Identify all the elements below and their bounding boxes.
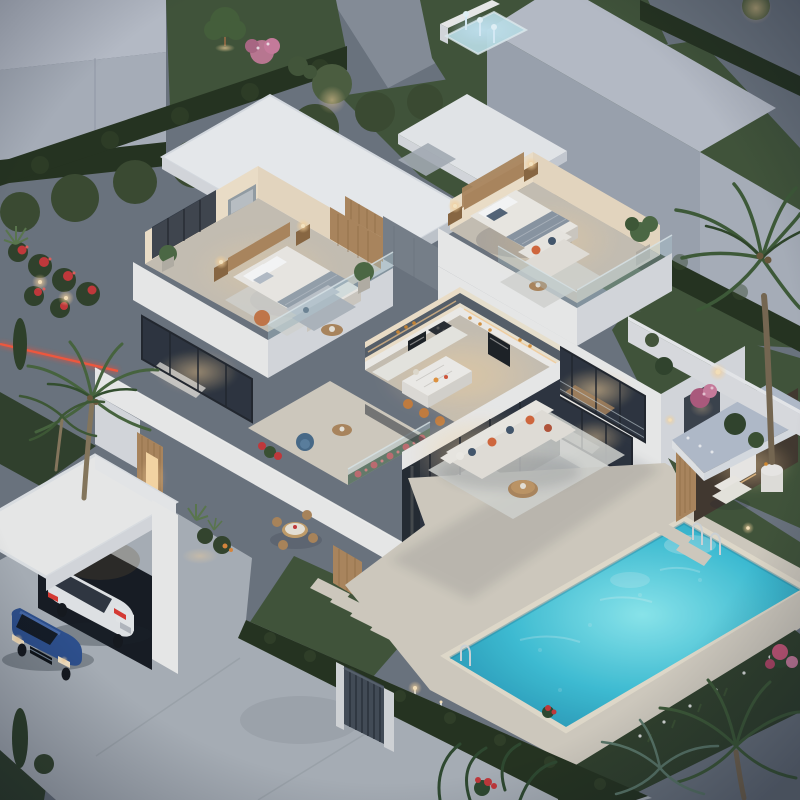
villa-render: Dusk aerial isometric 3D render of a mod… [0, 0, 800, 800]
scene-canvas: Dusk aerial isometric 3D render of a mod… [0, 0, 800, 800]
vignette [0, 0, 800, 800]
